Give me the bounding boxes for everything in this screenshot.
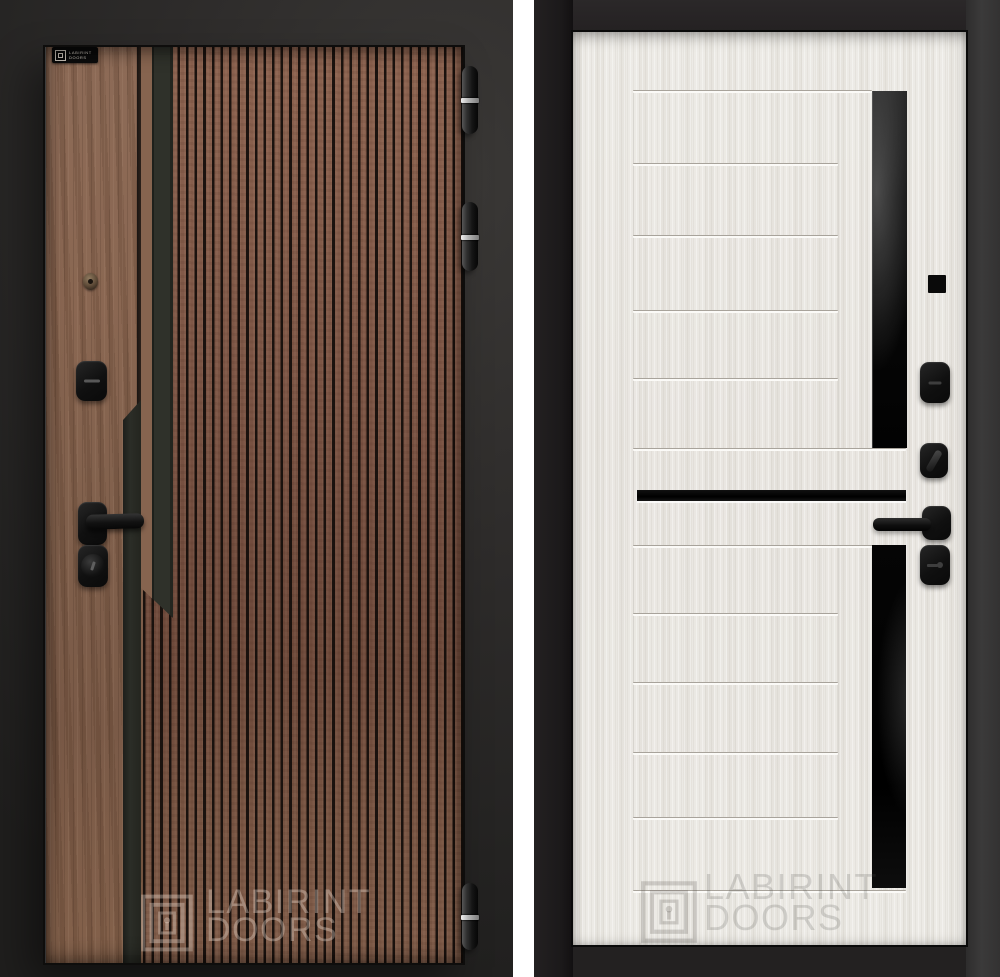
peephole-square xyxy=(928,275,946,293)
brand-maze-icon xyxy=(55,50,66,61)
exterior-door-panel: LABIRINT DOORS xyxy=(45,47,463,963)
panel-groove xyxy=(633,752,838,755)
panel-groove xyxy=(633,613,838,616)
watermark-maze-logo-icon xyxy=(141,893,193,953)
key-glyph xyxy=(927,562,943,568)
brand-plate-text: LABIRINT DOORS xyxy=(69,50,92,60)
cylinder-knob-plate xyxy=(78,545,108,587)
interior-door-photo: LABIRINT DOORS xyxy=(534,0,1000,977)
watermark-text: LABIRINT DOORS xyxy=(206,888,371,944)
watermark-maze-logo-icon xyxy=(640,881,698,943)
door-handle-lever xyxy=(86,513,144,530)
hinge-middle xyxy=(462,202,478,271)
hinge-band xyxy=(461,915,479,920)
brand-plate: LABIRINT DOORS xyxy=(52,47,98,63)
watermark-text: LABIRINT DOORS xyxy=(704,871,878,933)
hinge-top xyxy=(462,66,478,134)
fluted-wood-panel xyxy=(143,47,463,963)
accent-strip-lower xyxy=(123,400,141,963)
panel-groove xyxy=(633,90,872,93)
cylinder-knob-plate xyxy=(920,545,950,585)
exterior-door-photo: LABIRINT DOORS xyxy=(0,0,513,977)
hinge-bottom xyxy=(462,883,478,950)
key-stem xyxy=(927,564,938,567)
thumbturn-plate xyxy=(920,443,948,478)
glass-strip-vertical-lower xyxy=(872,545,906,888)
panel-groove xyxy=(633,545,906,548)
hinge-band xyxy=(461,235,479,240)
brand-plate-line2: DOORS xyxy=(69,55,92,60)
panel-groove xyxy=(633,378,838,381)
thumbturn-lever xyxy=(925,449,943,472)
panel-groove xyxy=(633,163,838,166)
keyhole-cover xyxy=(920,362,950,403)
door-frame-right xyxy=(966,0,1000,977)
door-frame-top xyxy=(534,0,1000,32)
hinge-band xyxy=(461,98,479,103)
keyhole-cover xyxy=(76,361,107,401)
panel-groove xyxy=(633,682,838,685)
peephole-screw xyxy=(83,273,98,290)
door-frame-left xyxy=(534,0,573,977)
peephole-center xyxy=(88,279,93,284)
door-frame-bottom xyxy=(534,945,1000,977)
glass-strip-vertical-upper xyxy=(872,91,907,448)
panel-groove xyxy=(633,310,838,313)
panel-edge-line xyxy=(633,90,634,890)
door-handle-lever xyxy=(873,518,931,531)
interior-door-leaf: LABIRINT DOORS xyxy=(573,32,966,945)
panel-shadow-vignette xyxy=(573,32,966,945)
panel-groove xyxy=(633,817,838,820)
accent-strip-upper xyxy=(141,47,173,618)
door-product-image: LABIRINT DOORS xyxy=(0,0,1000,977)
keyhole-slot xyxy=(929,381,942,384)
panel-groove xyxy=(633,448,906,451)
keyhole-slot xyxy=(84,380,100,383)
glass-strip-horizontal xyxy=(637,490,906,501)
panel-groove xyxy=(633,235,838,238)
